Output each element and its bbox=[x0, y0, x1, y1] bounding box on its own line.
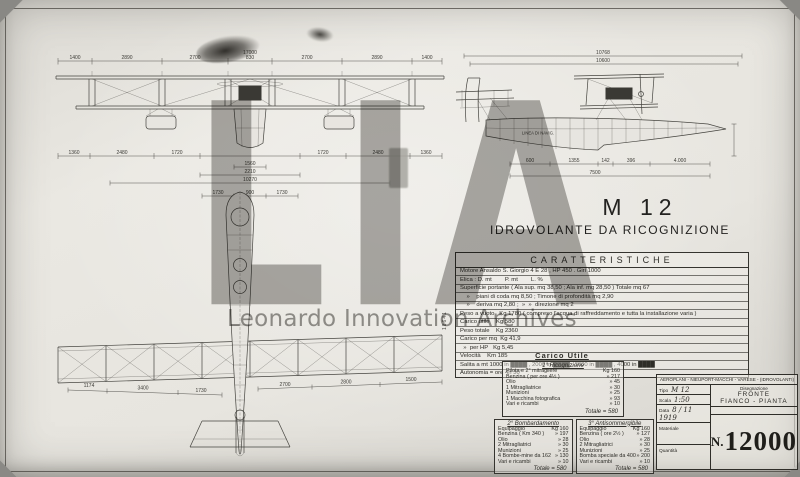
dimension-label: 1500 bbox=[405, 377, 416, 383]
drawing-name-value: FIANCO - PIANTA bbox=[713, 398, 795, 405]
drawing-number-value: 12000 bbox=[725, 426, 798, 457]
payload-title: Carico Utile bbox=[502, 351, 622, 360]
title-block-header: AEROPLANI - NIEUPORT-MACCHI - VARESE - (… bbox=[657, 375, 797, 385]
title-block-field-scala: Scala1:50 bbox=[657, 395, 710, 405]
dimension-label: 10270 bbox=[243, 177, 257, 183]
dimension-label: 2210 bbox=[244, 169, 255, 175]
dimension-label: 4.000 bbox=[674, 158, 687, 164]
payload-section: Carico Utile 1° Ricognizione Pilota e 2°… bbox=[494, 351, 654, 474]
side-view-wing-cell bbox=[574, 74, 664, 120]
payload-row-value: » 10 bbox=[610, 402, 621, 408]
dimension-label: 10768 bbox=[596, 50, 610, 56]
spec-row: » piani di coda mq 8,50 ; Timone di prof… bbox=[456, 293, 748, 302]
dimension-label: 2890 bbox=[371, 55, 382, 61]
dimension-label: 2800 bbox=[340, 380, 351, 386]
field-value: 1:50 bbox=[674, 396, 690, 404]
spec-row: Carico per mq Kg 41,9 bbox=[456, 336, 748, 345]
spec-table-header: CARATTERISTICHE bbox=[456, 253, 748, 268]
spec-row: Peso totale Kg 2360 bbox=[456, 327, 748, 336]
title-block-field-tipo: TipoM 12 bbox=[657, 385, 710, 395]
drawing-number-prefix: N. bbox=[711, 434, 724, 450]
dimension-label: 1360 bbox=[68, 150, 79, 156]
dimension-label: 1174 bbox=[84, 383, 95, 389]
plan-view-dim-lines bbox=[68, 380, 442, 398]
front-view-structure bbox=[56, 71, 444, 148]
dimension-label: 1730 bbox=[195, 388, 206, 394]
field-label: Scala bbox=[659, 399, 671, 404]
dimension-label: 600 bbox=[526, 158, 535, 164]
payload-row-value: » 10 bbox=[558, 460, 569, 466]
dimension-label: 1400 bbox=[421, 55, 432, 61]
aircraft-type-subtitle: IDROVOLANTE DA RICOGNIZIONE bbox=[462, 223, 758, 237]
title-block: AEROPLANI - NIEUPORT-MACCHI - VARESE - (… bbox=[656, 374, 798, 470]
dimension-label: 2700 bbox=[279, 382, 290, 388]
payload-row-value: » 10 bbox=[640, 460, 651, 466]
payload-row-label: Vari e ricambi bbox=[498, 460, 531, 466]
drawing-name: Disegnazione FRONTE FIANCO - PIANTA bbox=[711, 385, 797, 407]
dimension-label: 1720 bbox=[171, 150, 182, 156]
title-block-blank-row bbox=[711, 407, 797, 415]
spec-row: Elica : D. mt P. mt L. % bbox=[456, 276, 748, 285]
payload-row-label: Vari e ricambi bbox=[506, 402, 539, 408]
side-view-tail bbox=[456, 78, 514, 122]
dimension-label: 2700 bbox=[189, 55, 200, 61]
payload-table-bombardamento: 2° Bombardamento EquipaggioKg 160 Benzin… bbox=[494, 419, 573, 475]
title-block-field-data: Data8 / 11 1919 bbox=[657, 405, 710, 423]
title-block-field-materiale: Materiale bbox=[657, 423, 710, 445]
dimension-label: 3400 bbox=[137, 386, 148, 392]
dimension-label: 2480 bbox=[372, 150, 383, 156]
plan-view-drawing: 1174 3400 1730 2700 2800 1500 bbox=[50, 185, 450, 470]
payload-row-label: Vari e ricambi bbox=[580, 460, 613, 466]
dimension-label: 142 bbox=[601, 158, 610, 164]
field-label: Tipo bbox=[659, 389, 668, 394]
dimension-label: 2700 bbox=[301, 55, 312, 61]
drawing-name-label: Disegnazione bbox=[740, 386, 768, 391]
margin-note: 18641 bbox=[442, 311, 448, 330]
dimension-label: 2480 bbox=[116, 150, 127, 156]
plan-view-hull bbox=[226, 192, 254, 454]
payload-table-antisommergibile: 3° Antisommergibile EquipaggioKg 160 Ben… bbox=[576, 419, 655, 475]
dimension-label: 1400 bbox=[69, 55, 80, 61]
waterline-label: LINEA DI NAVIG. bbox=[522, 131, 554, 136]
dimension-label: 830 bbox=[246, 55, 255, 61]
field-label: Quantità bbox=[659, 449, 677, 454]
field-value: M 12 bbox=[671, 386, 689, 394]
plan-view-wing-lattice bbox=[58, 335, 442, 383]
field-label: Materiale bbox=[659, 427, 679, 432]
dimension-label: 1355 bbox=[568, 158, 579, 164]
dimension-label: 1560 bbox=[244, 161, 255, 167]
spec-row: » deriva mq 2,80 ; » » direzione mq 2 bbox=[456, 302, 748, 311]
payload-table-ricognizione: 1° Ricognizione Pilota e 2° mitragliereK… bbox=[502, 361, 624, 417]
spec-row: Peso a vuoto Kg 1780 ( compreso l'acqua … bbox=[456, 310, 748, 319]
dimension-label: 10600 bbox=[596, 58, 610, 64]
dimension-label: 2890 bbox=[121, 55, 132, 61]
dimension-label: 1720 bbox=[317, 150, 328, 156]
dimension-label: 1360 bbox=[420, 150, 431, 156]
aircraft-model-title: M 12 bbox=[560, 194, 720, 221]
spec-row: Superficie portante ( Ala sup. mq 38,50 … bbox=[456, 285, 748, 294]
title-block-fields: TipoM 12 Scala1:50 Data8 / 11 1919 Mater… bbox=[657, 385, 711, 469]
dimension-label: 396 bbox=[627, 158, 636, 164]
payload-total: Totale = 580 bbox=[577, 465, 654, 473]
payload-total: Totale = 580 bbox=[503, 408, 623, 416]
field-label: Data bbox=[659, 409, 669, 414]
dimension-label: 7500 bbox=[589, 170, 600, 176]
drawing-name-value: FRONTE bbox=[713, 391, 795, 398]
title-block-field-quantita: Quantità bbox=[657, 445, 710, 469]
spec-row: Motore Ansaldo S. Giorgio 4 E 28 , HP 45… bbox=[456, 268, 748, 277]
spec-row: Carico utile Kg 580 bbox=[456, 319, 748, 328]
payload-total: Totale = 580 bbox=[495, 465, 572, 473]
side-view-drawing: 10768 10600 LINEA DI NAVIG. 600 1355 142… bbox=[450, 48, 750, 198]
drawing-number: N. 12000 bbox=[711, 415, 797, 469]
